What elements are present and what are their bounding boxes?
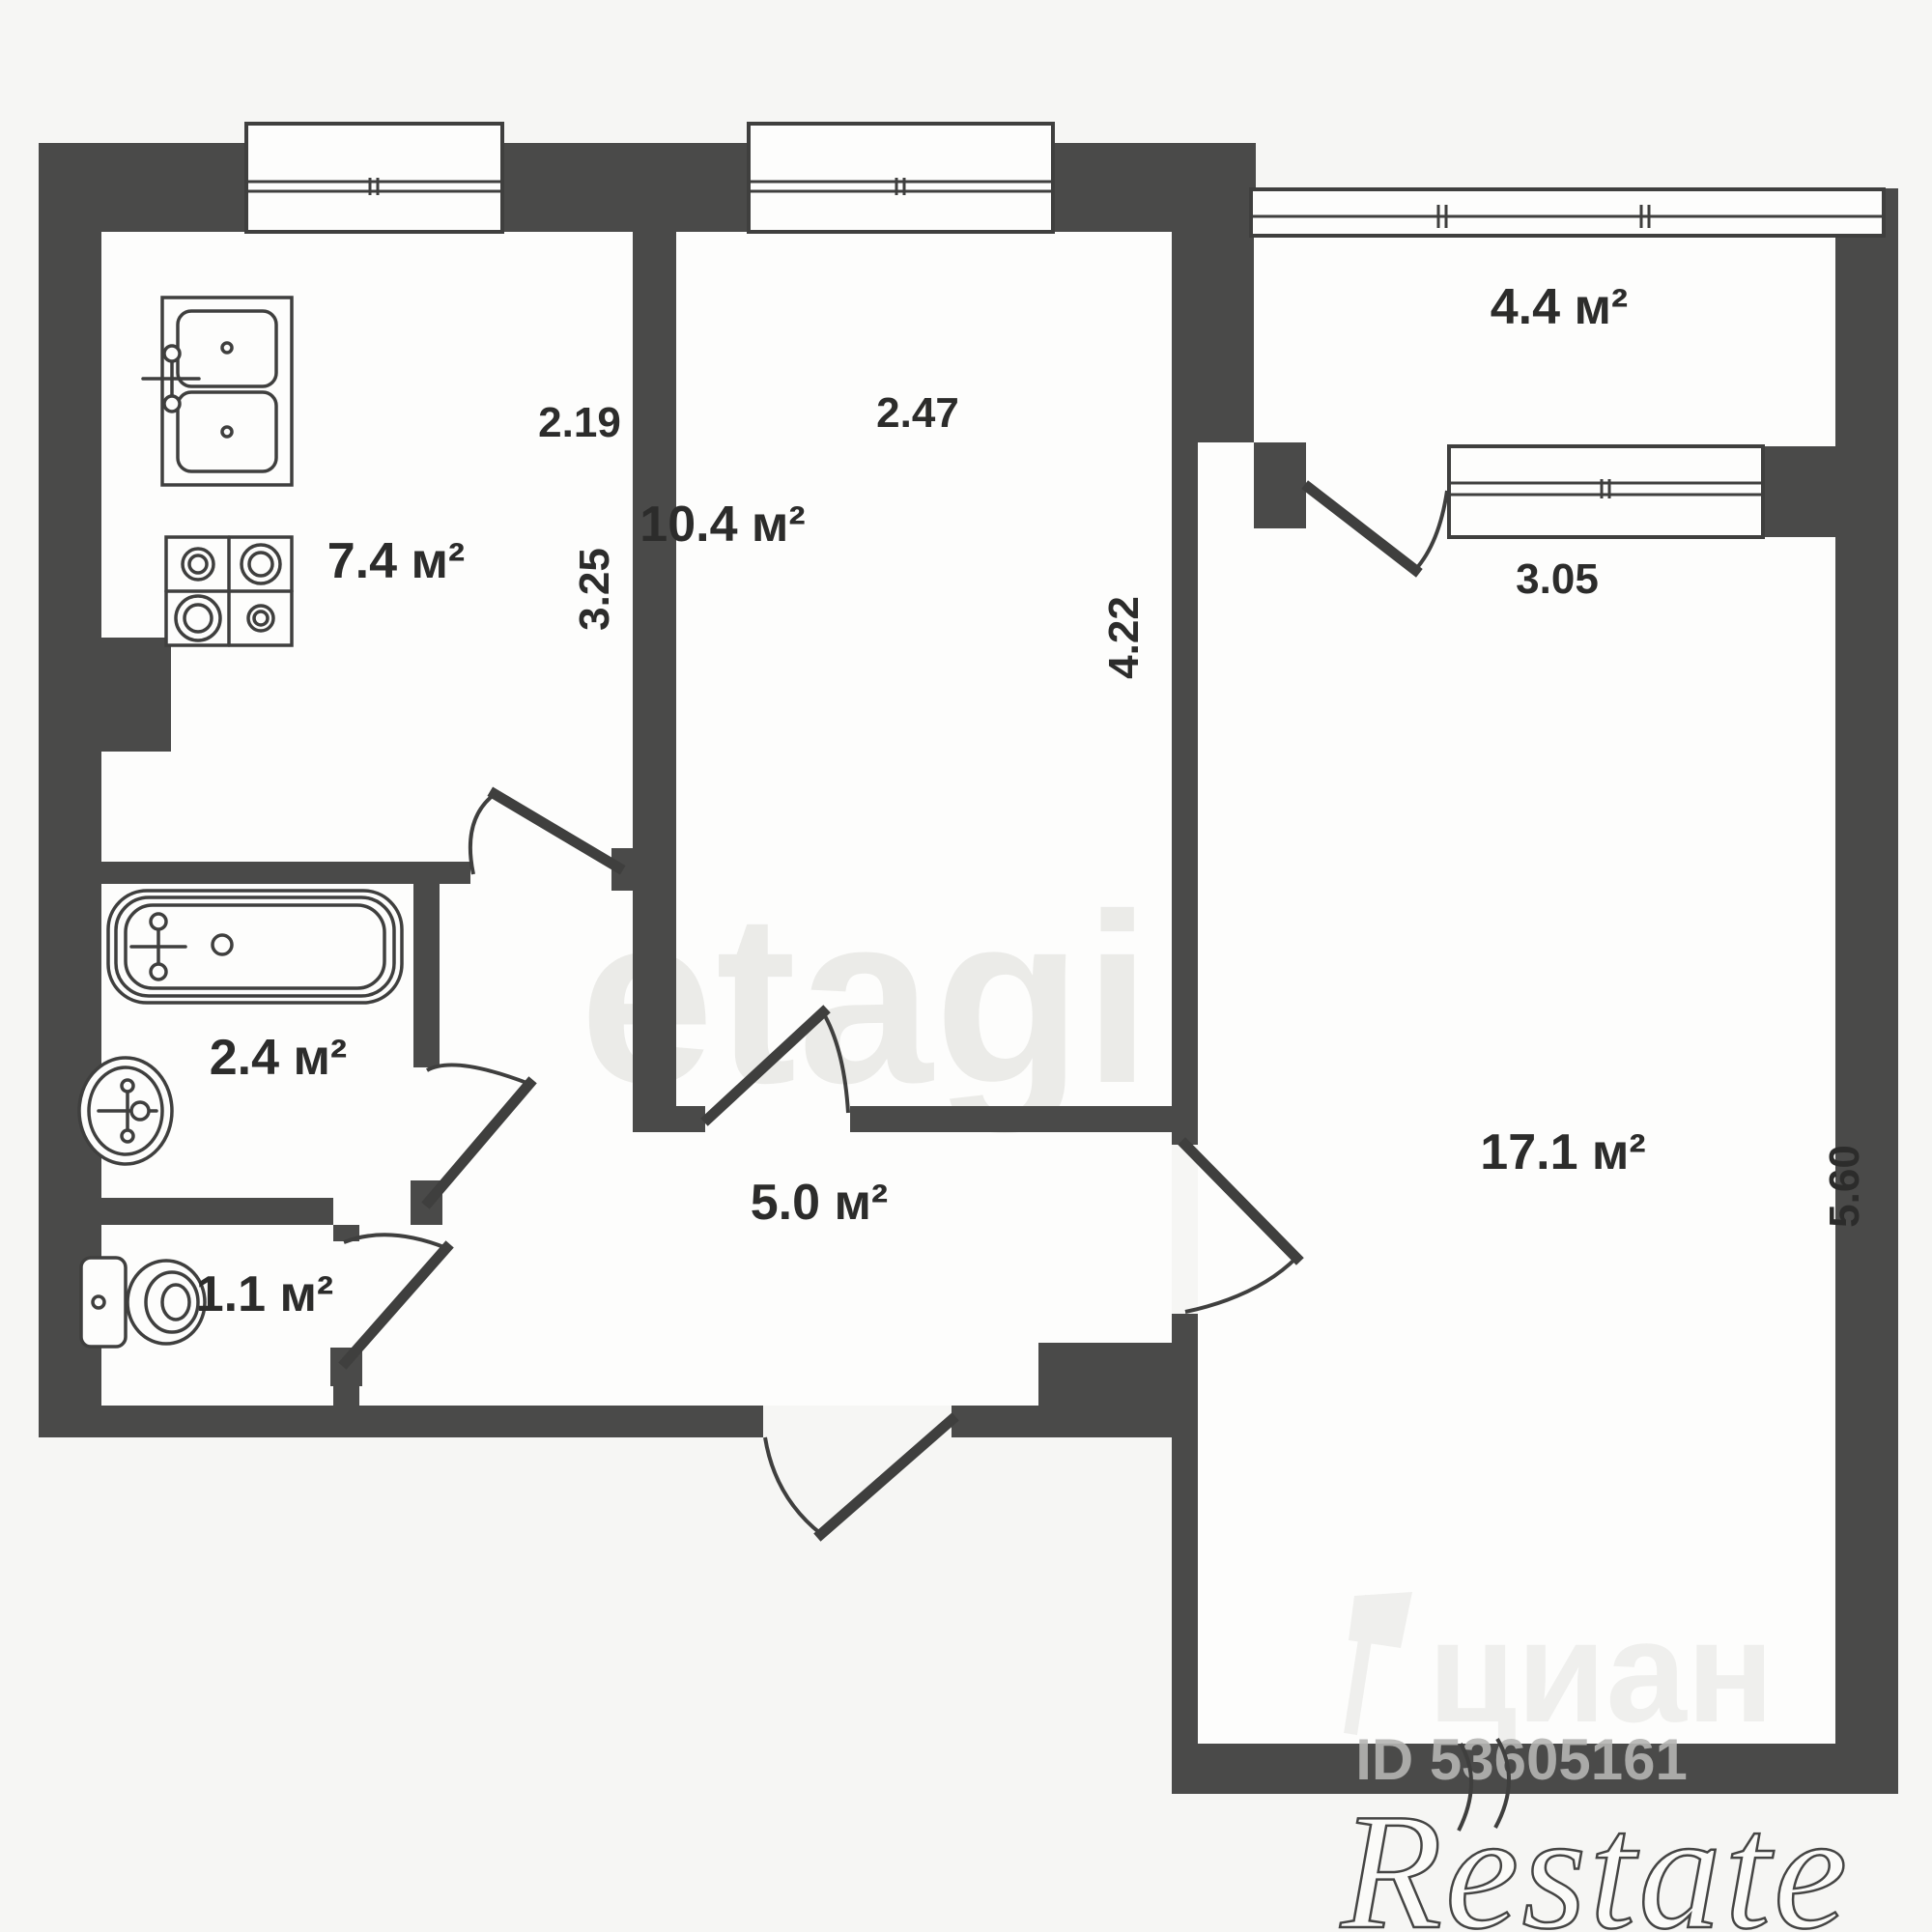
bathroom-area-label: 2.4 м² (210, 1030, 348, 1086)
balcony-bottom-wall-right (1763, 446, 1835, 537)
room-10-4-bottom-wall-left (633, 1106, 705, 1132)
bottom-wall-right (952, 1406, 1198, 1437)
dim-kitchen-depth: 3.25 (571, 548, 618, 631)
left-outer-wall (39, 143, 101, 1437)
room-10-4-area-label: 10.4 м² (639, 497, 805, 553)
bottom-wall-left (39, 1406, 763, 1437)
dim-room-10-4-width: 2.47 (876, 389, 959, 437)
room-10-4-window (749, 124, 1053, 232)
kitchen-wall-step (101, 638, 171, 752)
top-wall-right-segment (1053, 143, 1256, 232)
balcony-area-label: 4.4 м² (1491, 279, 1629, 335)
floor-plan: etagi циан (0, 0, 1932, 1932)
living-room-left-wall-lower (1172, 1314, 1198, 1744)
hallway-corner-block (1038, 1343, 1172, 1406)
bathroom-hall-wall (413, 884, 440, 1067)
bathroom-toilet-divider (101, 1198, 333, 1225)
kitchen-window (246, 124, 502, 232)
kitchen-bathroom-wall (101, 862, 470, 884)
restate-logo-text: Restate (1340, 1780, 1850, 1932)
balcony-lower-window (1449, 446, 1763, 537)
dim-kitchen-width: 2.19 (538, 399, 621, 446)
toilet-area-label: 1.1 м² (196, 1266, 334, 1322)
wash-basin (79, 1058, 172, 1164)
kitchen-room-divider-wall (633, 232, 676, 1106)
living-room-area-label: 17.1 м² (1480, 1124, 1645, 1180)
kitchen-sink (143, 298, 292, 485)
balcony-corner-wall (1172, 225, 1254, 442)
dim-room-10-4-depth: 4.22 (1100, 596, 1148, 679)
dim-living-room-depth: 5.60 (1821, 1145, 1868, 1228)
right-outer-wall (1835, 188, 1898, 1794)
toilet-wall-stub-bottom (333, 1386, 359, 1406)
balcony-glazing-band (1251, 189, 1884, 236)
balcony-door-jamb (1254, 442, 1306, 528)
hallway-area-label: 5.0 м² (751, 1175, 889, 1231)
bathtub (108, 891, 402, 1003)
floor-plan-page: etagi циан (0, 0, 1932, 1932)
toilet (81, 1258, 205, 1347)
stove (166, 537, 292, 645)
room-10-4-bottom-wall-right (850, 1106, 1198, 1132)
top-wall-mid-segment (502, 143, 749, 232)
kitchen-area-label: 7.4 м² (327, 533, 466, 589)
balcony-floor (1254, 236, 1835, 446)
living-room-left-wall-upper (1172, 415, 1198, 1145)
living-room-floor (1198, 442, 1835, 1744)
dim-balcony-door-width: 3.05 (1516, 555, 1599, 603)
